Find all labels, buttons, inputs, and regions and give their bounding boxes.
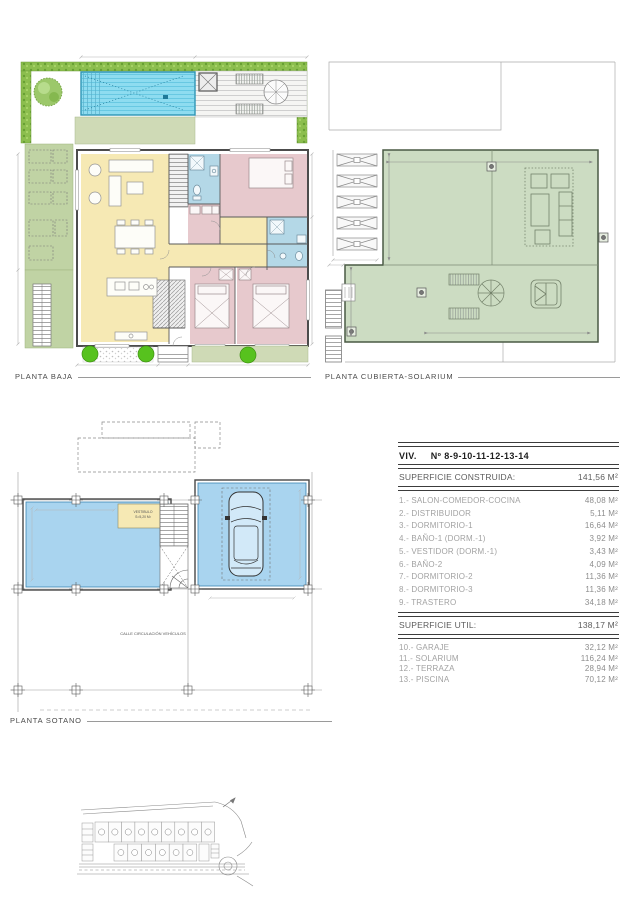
entry-zone <box>82 346 308 363</box>
closet-hall <box>220 217 267 244</box>
built-area-value: 141,56 M² <box>578 470 618 485</box>
planta-cubierta-plan <box>325 50 625 368</box>
useful-area-row: SUPERFICIE UTIL: 138,17 M² <box>398 618 619 633</box>
swimming-pool <box>81 72 195 115</box>
vestibule-label: VESTIBULO <box>133 510 152 514</box>
site-plan <box>75 793 260 898</box>
planta-sotano-label: PLANTA SOTANO <box>10 716 332 725</box>
table-rule <box>398 464 619 469</box>
planta-baja-label-text: PLANTA BAJA <box>15 372 73 381</box>
table-row: 11.- SOLARIUM116,24 M² <box>398 654 619 664</box>
label-rule <box>78 377 311 378</box>
round-table <box>264 80 288 104</box>
table-row: 8.- DORMITORIO-311,36 M² <box>398 584 619 597</box>
north-arrow-icon <box>223 798 235 807</box>
table-row: 3.- DORMITORIO-116,64 M² <box>398 520 619 533</box>
street-label: CALLE CIRCULACIÓN VEHÍCULOS <box>120 631 186 636</box>
vestibule-area-label: S=5,20 M² <box>135 515 152 519</box>
table-row: 10.- GARAJE32,12 M² <box>398 643 619 653</box>
planta-baja-label: PLANTA BAJA <box>15 372 311 381</box>
exterior-stairs <box>33 284 51 346</box>
garage <box>195 480 309 589</box>
table-row: 9.- TRASTERO34,18 M² <box>398 597 619 610</box>
table-row: 4.- BAÑO-1 (DORM.-1)3,92 M² <box>398 533 619 546</box>
plot-row-bottom <box>114 844 197 861</box>
plot-row-top <box>95 822 215 842</box>
table-title-number: Nº 8-9-10-11-12-13-14 <box>431 451 529 461</box>
tree <box>34 78 62 106</box>
parasol-table <box>478 280 504 306</box>
planta-baja-plan <box>15 50 315 368</box>
pergola-slats <box>332 150 379 262</box>
built-area-label: SUPERFICIE CONSTRUIDA: <box>399 470 515 485</box>
terrace-strip <box>75 117 195 144</box>
table-row: 1.- SALON-COMEDOR-COCINA48,08 M² <box>398 495 619 508</box>
car <box>222 488 270 580</box>
table-row: 6.- BAÑO-24,09 M² <box>398 559 619 572</box>
basement-stairs <box>160 504 188 588</box>
label-rule <box>458 377 620 378</box>
planta-sotano-plan: VESTIBULO S=5,20 M² <box>10 410 340 715</box>
planta-cubierta-label-text: PLANTA CUBIERTA-SOLARIUM <box>325 372 453 381</box>
useful-area-value: 138,17 M² <box>578 618 618 633</box>
table-rule <box>398 634 619 639</box>
table-rule <box>398 442 619 447</box>
skylight <box>199 73 217 91</box>
table-rule <box>398 486 619 491</box>
built-area-row: SUPERFICIE CONSTRUIDA: 141,56 M² <box>398 470 619 485</box>
table-rule <box>398 612 619 617</box>
table-title-prefix: VIV. <box>399 451 417 461</box>
planta-sotano-label-text: PLANTA SOTANO <box>10 716 82 725</box>
table-title: VIV. Nº 8-9-10-11-12-13-14 <box>398 448 619 463</box>
site-plots <box>82 822 219 861</box>
planta-cubierta-label: PLANTA CUBIERTA-SOLARIUM <box>325 372 620 381</box>
label-rule <box>87 721 332 722</box>
side-garden <box>25 144 73 348</box>
site-roundabout <box>219 857 237 875</box>
table-row: 2.- DISTRIBUIDOR5,11 M² <box>398 508 619 521</box>
table-row: 7.- DORMITORIO-211,36 M² <box>398 571 619 584</box>
table-row: 12.- TERRAZA28,94 M² <box>398 664 619 674</box>
upper-floor-outline <box>78 422 220 472</box>
extra-area-list: 10.- GARAJE32,12 M² 11.- SOLARIUM116,24 … <box>398 640 619 687</box>
surface-table: VIV. Nº 8-9-10-11-12-13-14 SUPERFICIE CO… <box>398 441 619 687</box>
useful-area-label: SUPERFICIE UTIL: <box>399 618 476 633</box>
hall-corridor <box>155 244 267 267</box>
drawing-sheet: PLANTA BAJA <box>0 0 636 900</box>
table-row: 5.- VESTIDOR (DORM.-1)3,43 M² <box>398 546 619 559</box>
room-area-list: 1.- SALON-COMEDOR-COCINA48,08 M² 2.- DIS… <box>398 492 619 611</box>
table-row: 13.- PISCINA70,12 M² <box>398 675 619 685</box>
